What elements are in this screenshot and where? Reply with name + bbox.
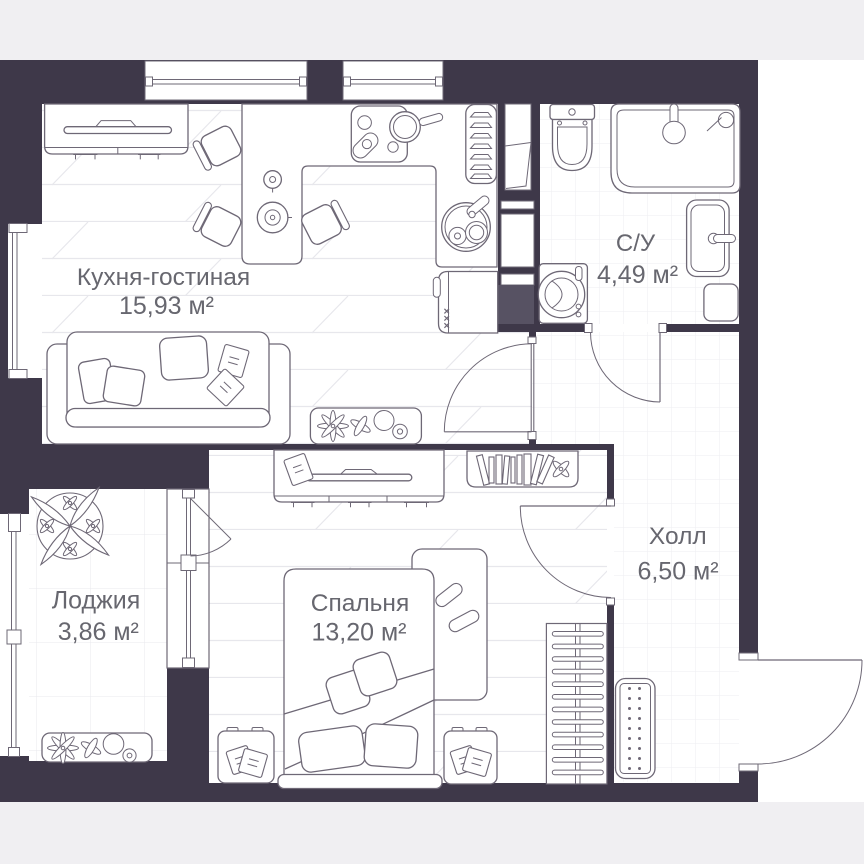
svg-text:С/У: С/У — [616, 230, 656, 257]
svg-text:Спальня: Спальня — [311, 590, 409, 617]
svg-text:Лоджия: Лоджия — [52, 587, 141, 615]
svg-text:6,50 м²: 6,50 м² — [637, 558, 718, 586]
svg-text:Кухня-гостиная: Кухня-гостиная — [77, 264, 250, 291]
svg-text:3,86 м²: 3,86 м² — [58, 618, 139, 646]
svg-text:15,93 м²: 15,93 м² — [119, 292, 214, 320]
svg-text:13,20 м²: 13,20 м² — [311, 619, 406, 647]
svg-text:4,49 м²: 4,49 м² — [597, 261, 678, 289]
svg-text:Холл: Холл — [649, 523, 707, 550]
